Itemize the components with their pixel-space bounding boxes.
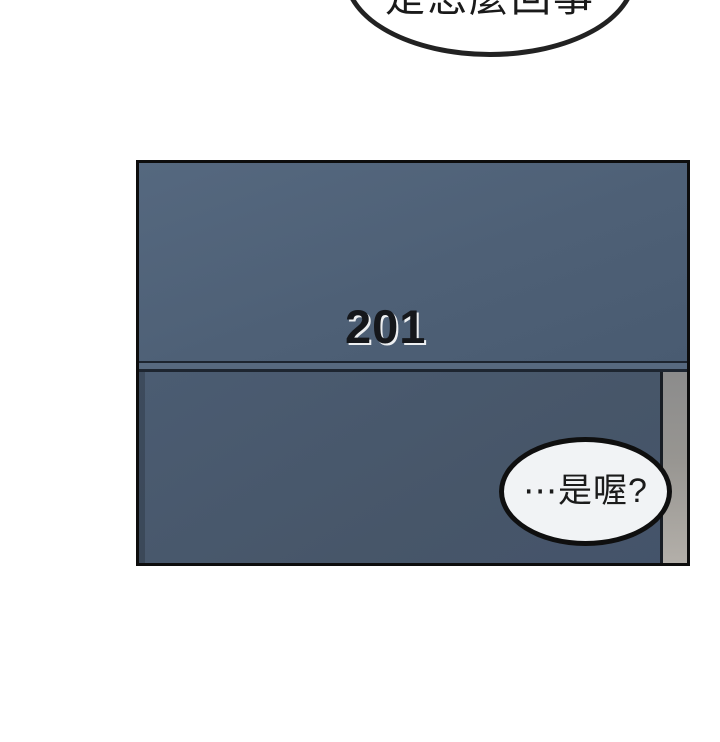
door-frame-strip (660, 372, 687, 563)
speech-bubble-top-text: 是怎麼回事 (344, 0, 636, 18)
door-frame-divider (139, 361, 687, 372)
door-number-plate: 201 (345, 303, 426, 350)
door-left-edge-shade (139, 372, 145, 563)
speech-bubble-reply: ⋯是喔? (499, 437, 672, 546)
comic-page: 是怎麼回事 201 ⋯是喔? (0, 0, 720, 742)
door-upper-section: 201 (139, 163, 687, 361)
speech-bubble-reply-text: ⋯是喔? (523, 474, 648, 510)
